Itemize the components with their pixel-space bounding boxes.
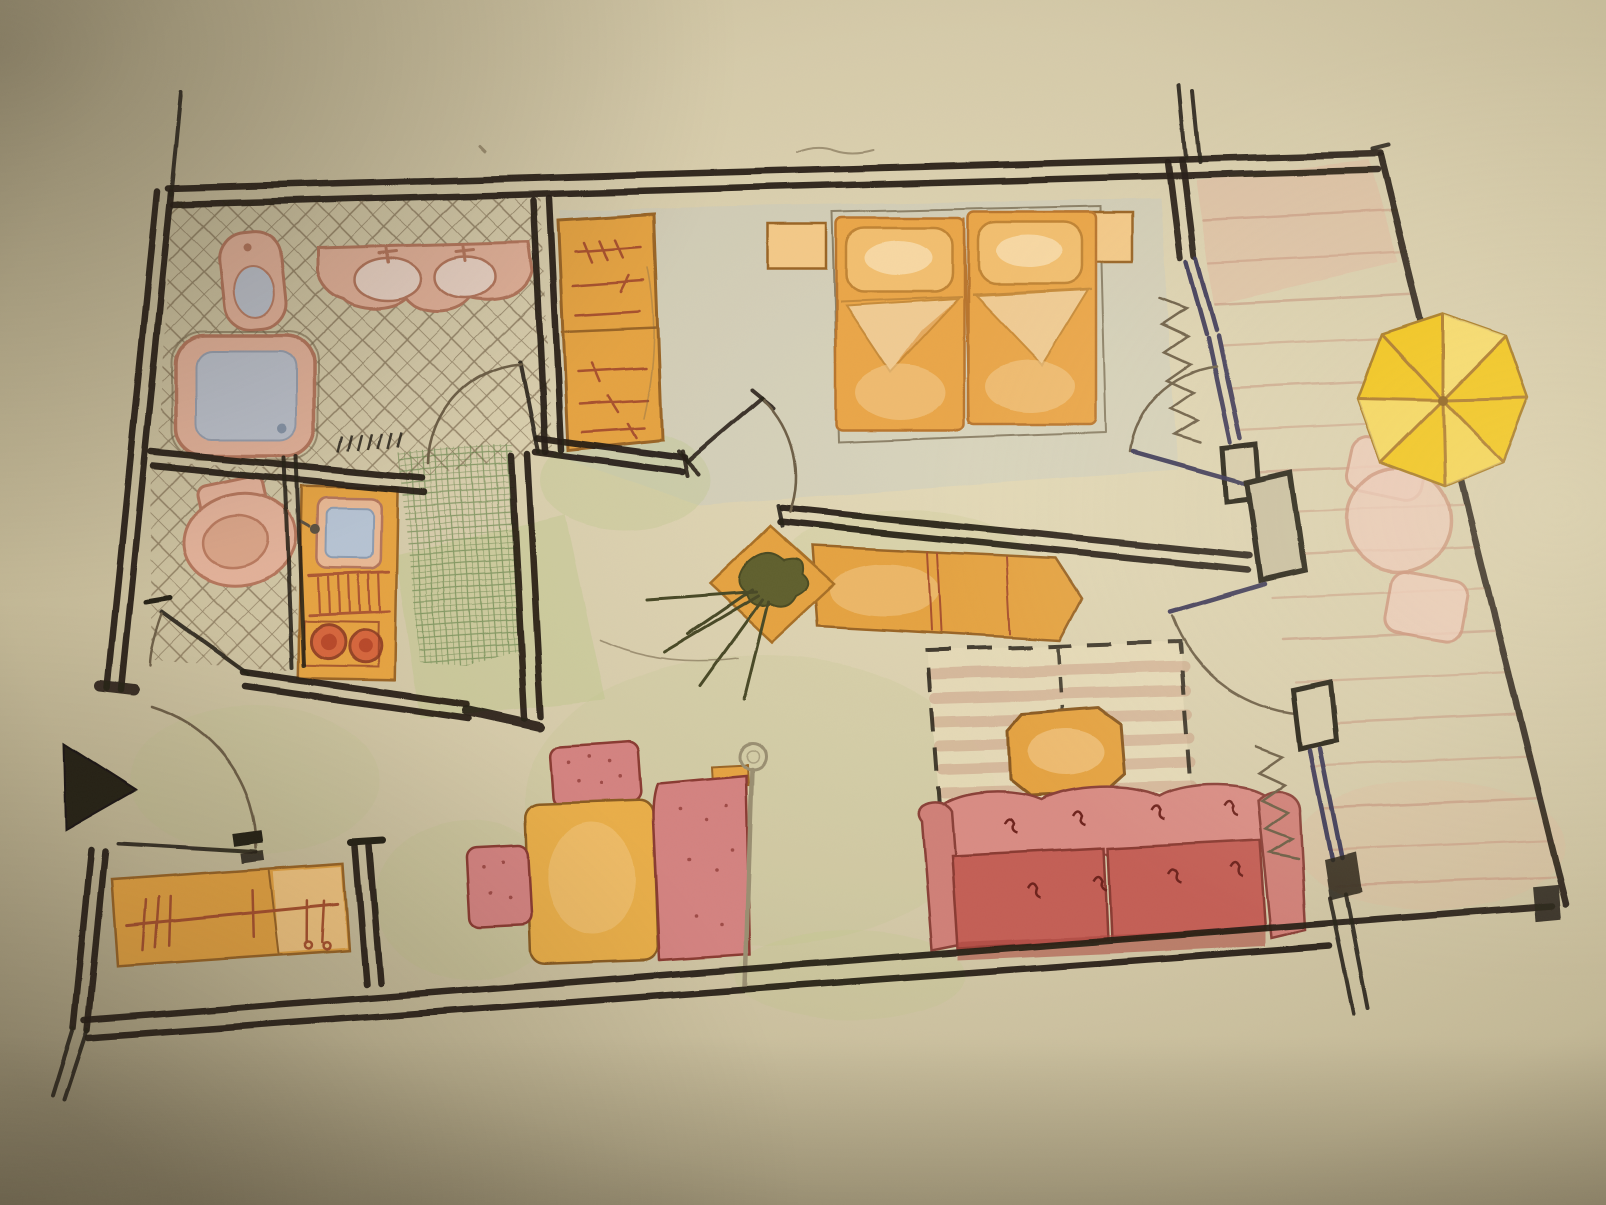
- paper-grain: [0, 0, 1606, 1205]
- floor-plan-drawing: [0, 0, 1606, 1205]
- photo-of-floor-plan: Hand-drawn colored-pencil floor plan pho…: [0, 0, 1606, 1205]
